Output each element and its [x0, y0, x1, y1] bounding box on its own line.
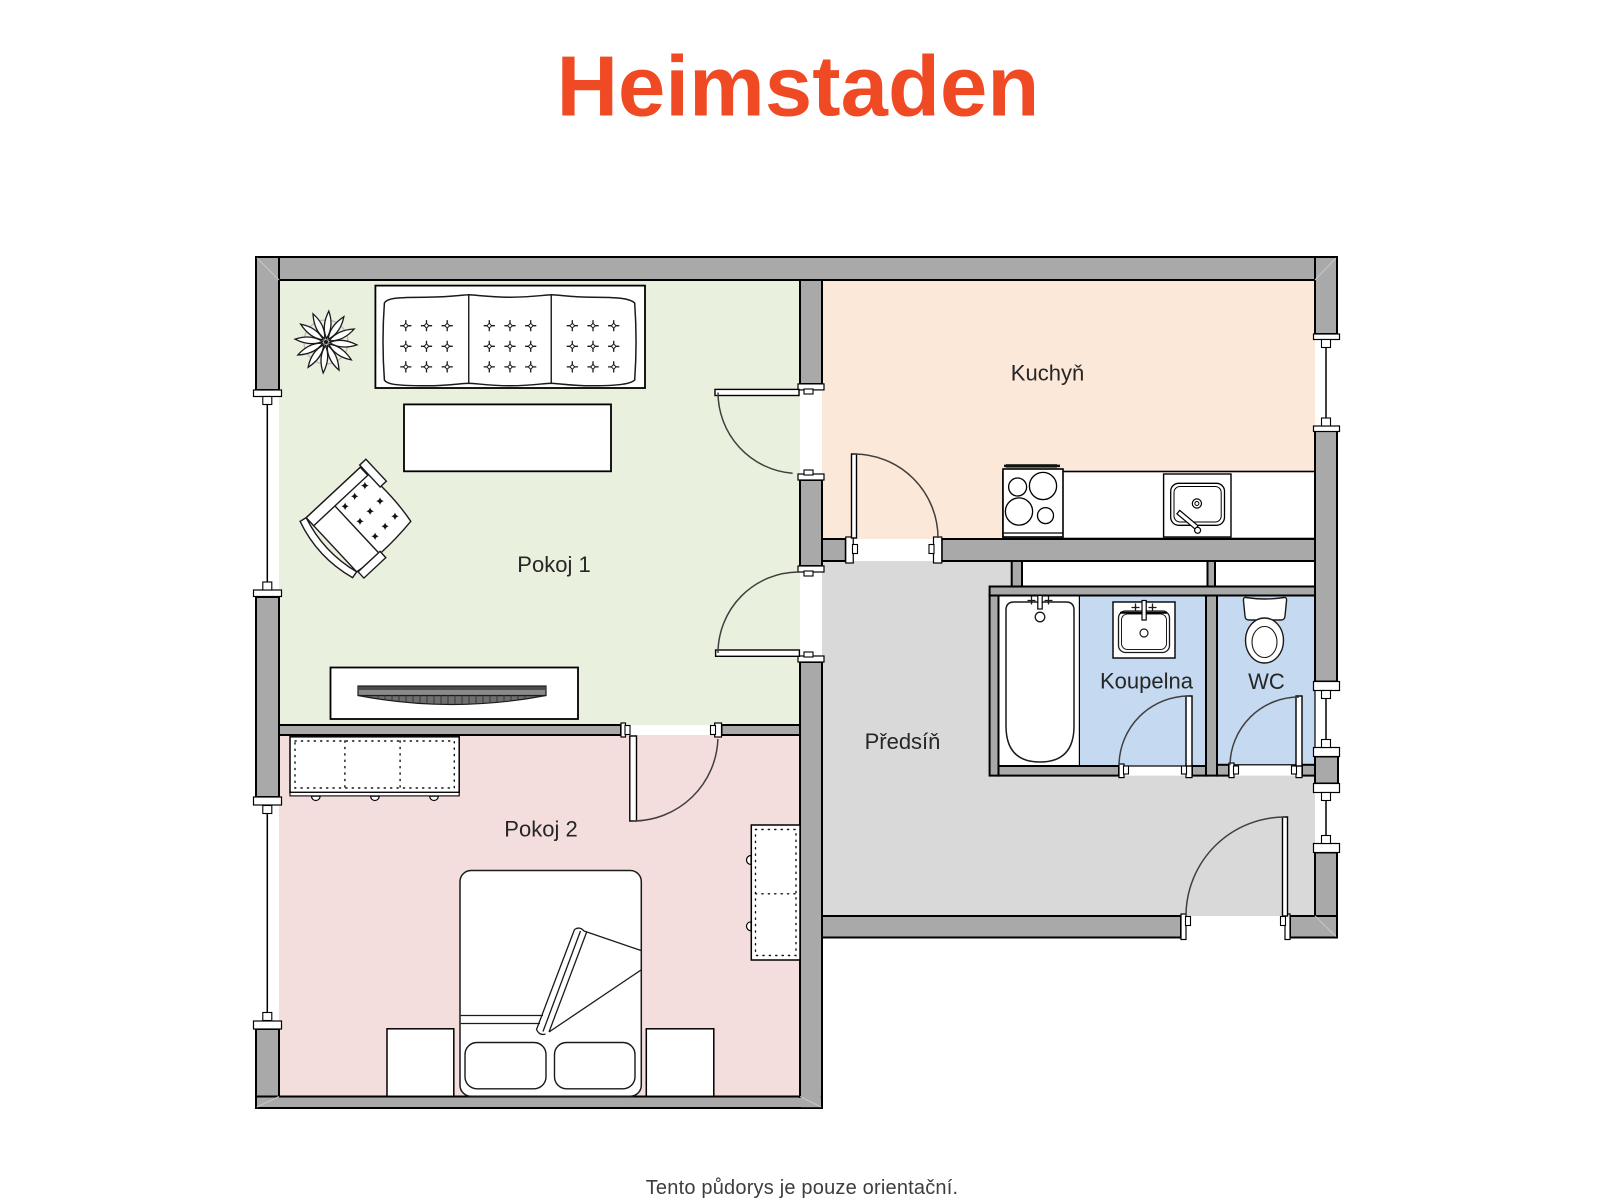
svg-text:Koupelna: Koupelna: [1100, 669, 1194, 694]
svg-text:Tento půdorys je pouze orienta: Tento půdorys je pouze orientační.: [646, 1177, 959, 1199]
svg-text:Kuchyň: Kuchyň: [1011, 361, 1084, 386]
svg-text:Pokoj 2: Pokoj 2: [504, 817, 577, 842]
svg-text:WC: WC: [1248, 669, 1285, 694]
svg-text:Předsíň: Předsíň: [865, 729, 941, 754]
svg-text:Pokoj 1: Pokoj 1: [517, 552, 590, 577]
svg-text:Heimstaden: Heimstaden: [557, 40, 1040, 135]
